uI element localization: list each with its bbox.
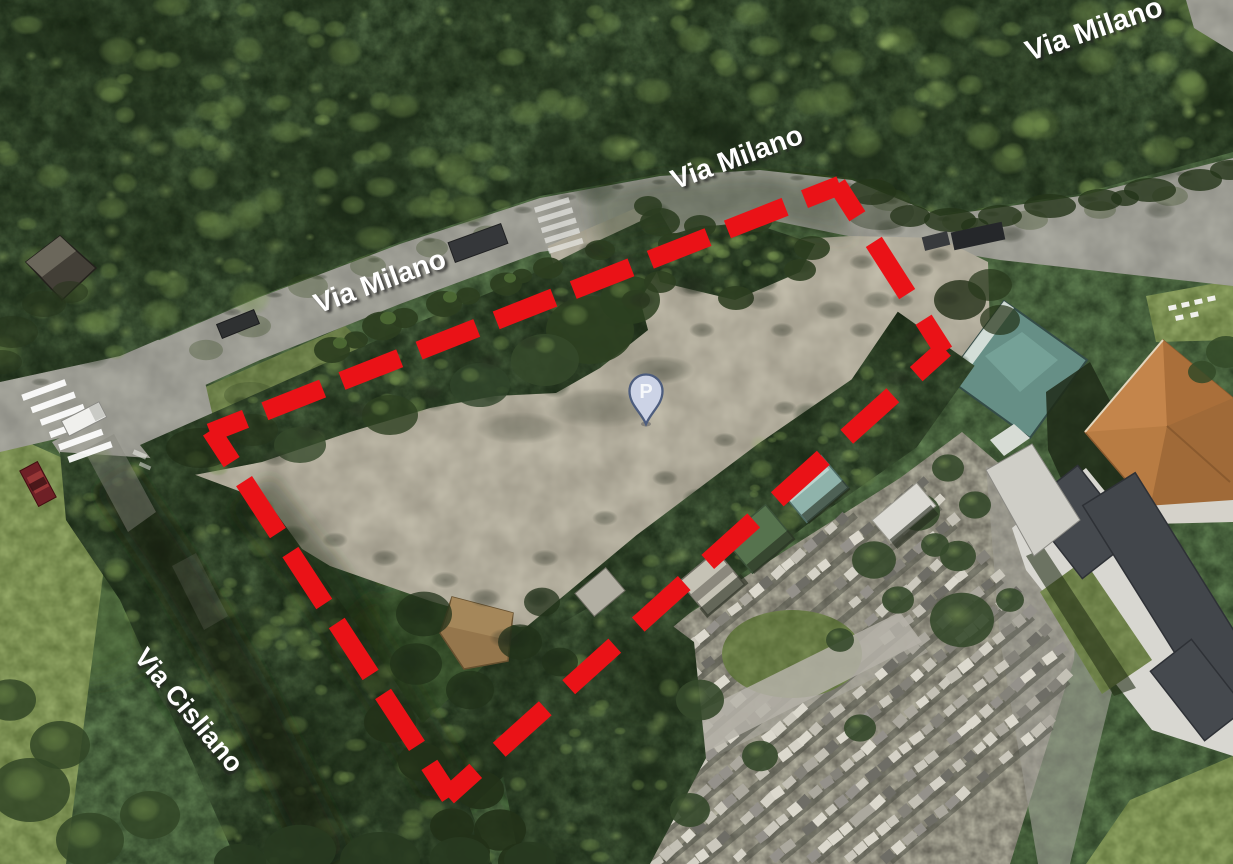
- svg-text:P: P: [639, 381, 652, 403]
